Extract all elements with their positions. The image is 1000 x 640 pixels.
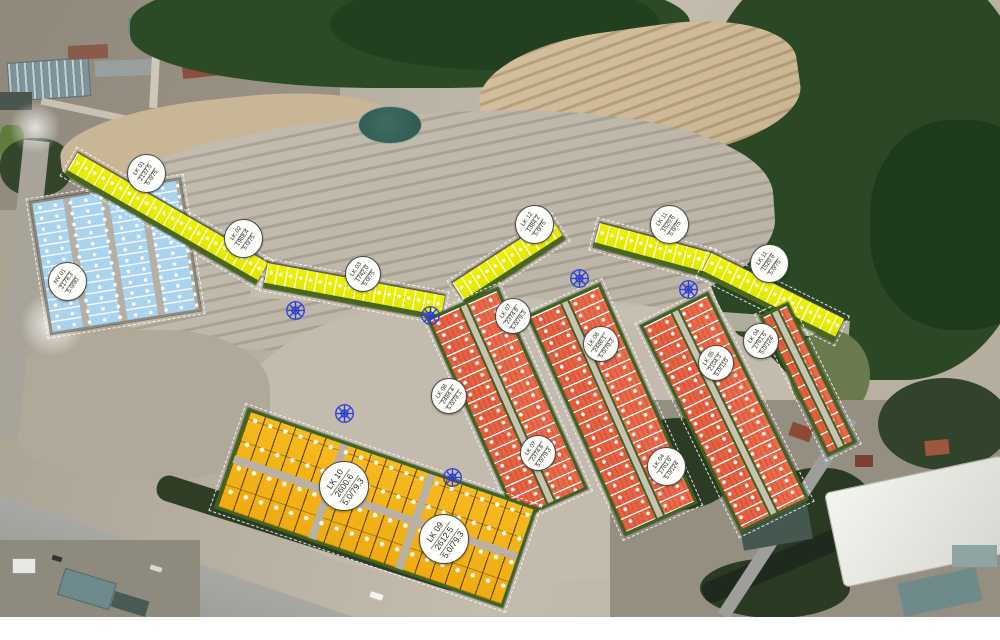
block-label-LK12: LK 121384.25.0/75 [515, 205, 554, 244]
block-label-LK04-b: LK 041761.65.0/124 [647, 447, 686, 486]
block-label-LK07-a: LK 072374.85.0/79.3 [495, 298, 531, 334]
block-label-LK11-a: LK 111520.65.0/75 [650, 205, 689, 244]
block-label-LK02: LK 021968.45.0/75 [224, 219, 263, 258]
compass-rose-icon [442, 467, 463, 488]
br-red-roof-3 [924, 439, 949, 456]
block-label-LK08: LK 082484.45.0/78.1 [431, 378, 467, 414]
block-label-NV01: NV 012178.35.0/90 [48, 262, 87, 301]
compass-rose-icon [420, 305, 441, 326]
block-label-LK07-b: LK 072374.85.0/79.3 [520, 435, 556, 471]
br-shed-teal-3 [952, 545, 997, 567]
billboard [12, 558, 36, 574]
bottom-white-margin [0, 617, 1000, 640]
block-label-LK03: LK 031742.05.0/75 [345, 256, 381, 292]
compass-rose-icon [678, 279, 699, 300]
block-label-LK04-a: LK 041761.65.0/124 [743, 323, 779, 359]
block-label-LK06-a: LK 062446.15.0/79.3 [583, 326, 619, 362]
block-label-LK05: LK 052104.35.0/110 [698, 345, 734, 381]
br-red-roof-4 [855, 455, 873, 467]
building-gray [95, 59, 154, 77]
compass-rose-icon [569, 268, 590, 289]
block-label-LK10: LK 102600.65.0/79.3 [319, 461, 369, 511]
aerial-masterplan-photo: NV 012178.35.0/90 LK 012137.55.0/75 LK 0… [0, 0, 1000, 640]
compass-rose-icon [285, 300, 306, 321]
smoke-plume-1 [10, 100, 60, 155]
block-label-LK11-b: LK 111520.65.0/75 [750, 244, 789, 283]
br-trees-3 [878, 378, 1000, 470]
vehicle-1 [369, 591, 383, 601]
pond [358, 106, 422, 144]
building-long [68, 44, 109, 60]
block-label-LK01: LK 012137.55.0/75 [127, 154, 166, 193]
block-label-LK09: LK 092612.55.0/79.3 [419, 514, 469, 564]
compass-rose-icon [334, 403, 355, 424]
